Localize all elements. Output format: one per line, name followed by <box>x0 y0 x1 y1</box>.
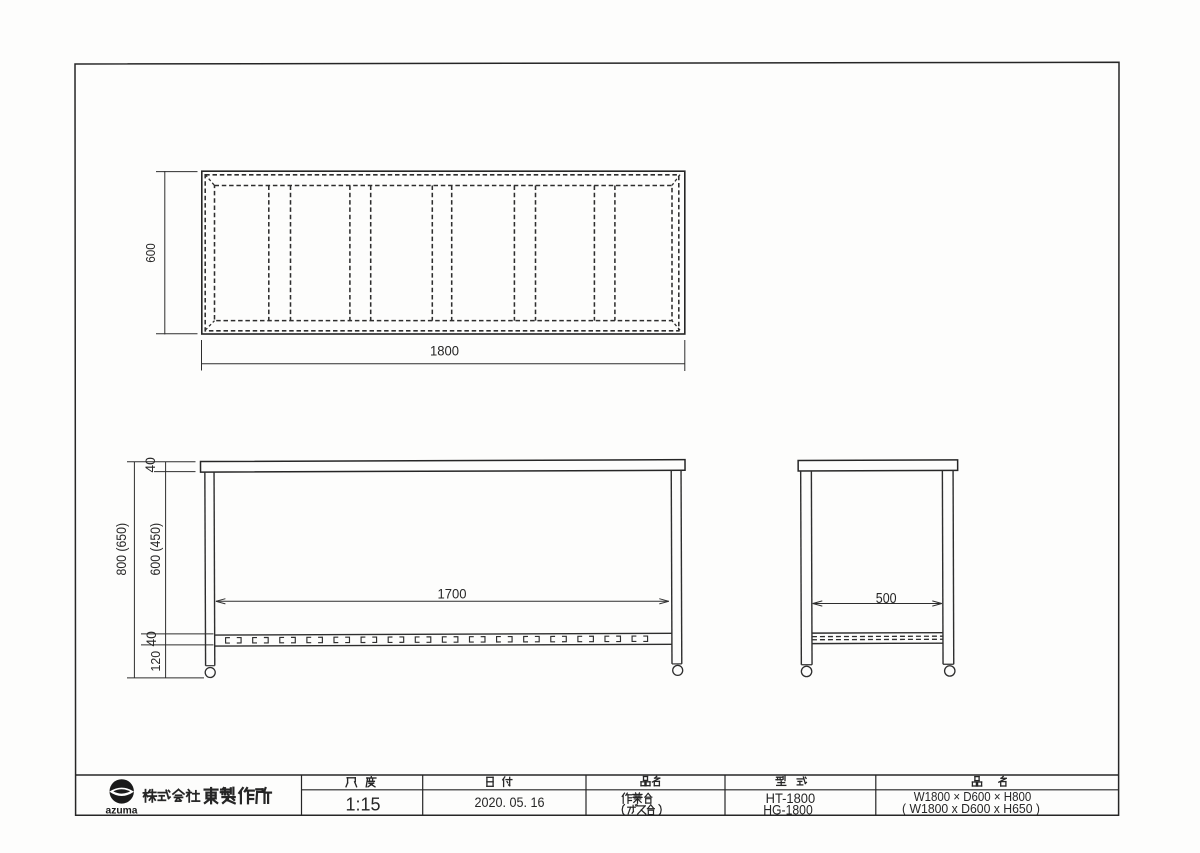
svg-text:HG-1800: HG-1800 <box>763 803 813 818</box>
svg-text:40: 40 <box>143 457 158 473</box>
svg-text:1800: 1800 <box>430 343 459 359</box>
svg-text:2020. 05. 16: 2020. 05. 16 <box>475 795 545 810</box>
svg-text:azuma: azuma <box>106 806 138 817</box>
svg-text:600 (450): 600 (450) <box>148 523 163 576</box>
svg-text:600: 600 <box>143 243 158 263</box>
svg-text:1:15: 1:15 <box>346 795 381 815</box>
svg-text:120: 120 <box>148 651 163 672</box>
svg-text:500: 500 <box>876 591 897 607</box>
svg-text:40: 40 <box>144 631 159 647</box>
svg-text:1700: 1700 <box>438 586 467 602</box>
svg-text:800 (650): 800 (650) <box>114 523 129 576</box>
svg-text:( W1800 x D600 x H650 ): ( W1800 x D600 x H650 ) <box>902 801 1040 816</box>
